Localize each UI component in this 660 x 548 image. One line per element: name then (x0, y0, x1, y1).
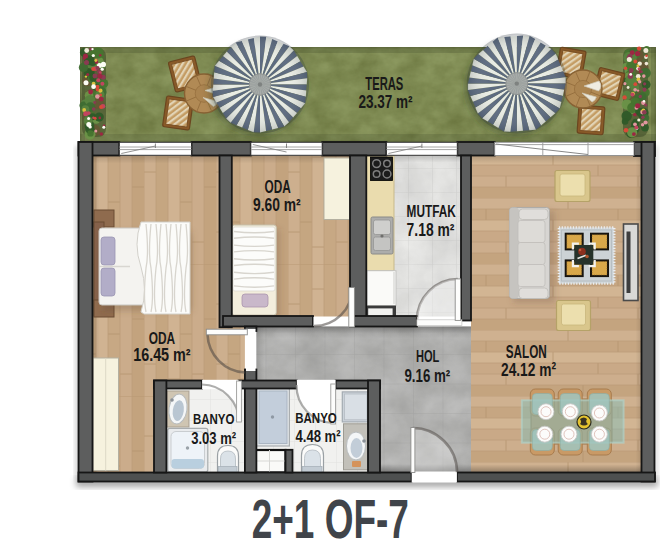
svg-text:23.37 m²: 23.37 m² (358, 93, 412, 112)
svg-text:9.16 m²: 9.16 m² (404, 366, 450, 385)
svg-text:4.48 m²: 4.48 m² (295, 427, 340, 445)
svg-text:BANYO: BANYO (295, 410, 337, 427)
svg-text:MUTFAK: MUTFAK (407, 201, 457, 220)
svg-text:TERAS: TERAS (365, 75, 403, 94)
svg-text:3.03 m²: 3.03 m² (191, 429, 236, 447)
svg-text:HOL: HOL (416, 346, 440, 365)
svg-text:BANYO: BANYO (193, 410, 235, 427)
svg-text:7.18 m²: 7.18 m² (407, 219, 455, 239)
svg-text:2+1 OF-7: 2+1 OF-7 (252, 489, 409, 548)
svg-text:16.45 m²: 16.45 m² (133, 345, 191, 365)
svg-text:24.12 m²: 24.12 m² (501, 359, 556, 379)
svg-text:9.60 m²: 9.60 m² (253, 194, 301, 214)
